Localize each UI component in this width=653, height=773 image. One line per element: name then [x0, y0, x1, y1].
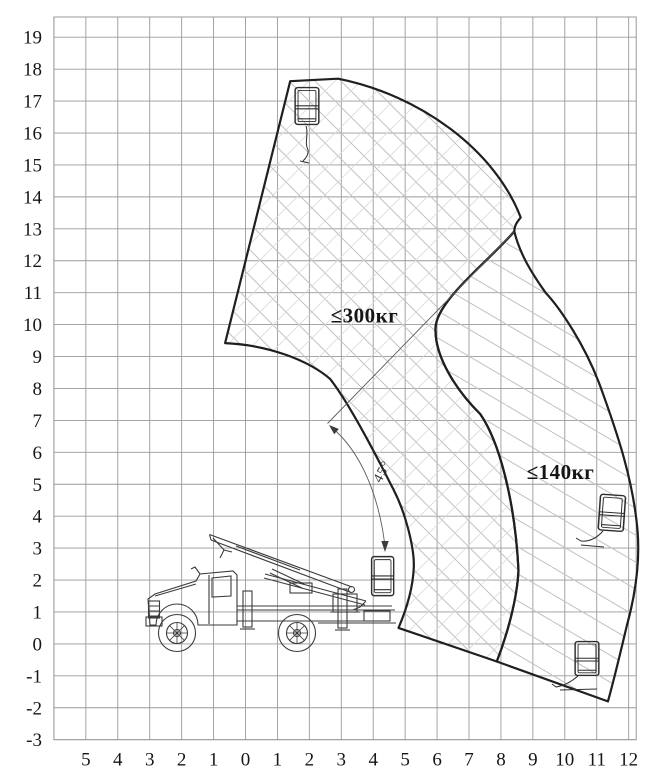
y-tick-label: 1 [33, 602, 43, 623]
y-tick-label: 2 [33, 571, 43, 592]
y-tick-label: -3 [26, 730, 42, 751]
x-tick-label: 3 [337, 750, 347, 771]
x-tick-label: 8 [496, 750, 506, 771]
truck-outrigger-front [243, 591, 252, 627]
y-tick-label: 18 [23, 60, 42, 81]
x-tick-label: 4 [113, 750, 123, 771]
boom-cylinder [270, 569, 304, 588]
x-tick-label: 5 [81, 750, 91, 771]
truck-grille-lines [149, 606, 159, 616]
x-tick-label: 7 [464, 750, 474, 771]
x-tick-label: 10 [555, 750, 574, 771]
y-tick-label: 15 [23, 155, 42, 176]
truck-front-wheel [159, 615, 196, 652]
y-tick-label: 10 [23, 315, 42, 336]
y-tick-label: 11 [24, 283, 42, 304]
platform-basket-icon-stowed [372, 557, 394, 596]
y-tick-label: 16 [23, 124, 42, 145]
truck-mirror [191, 567, 200, 574]
x-tick-label: 4 [368, 750, 378, 771]
truck-door [209, 575, 231, 624]
y-tick-label: -2 [26, 698, 42, 719]
y-tick-label: 9 [33, 347, 43, 368]
truck-hood-line [155, 584, 196, 596]
x-tick-label: 1 [209, 750, 219, 771]
y-tick-label: 3 [33, 539, 43, 560]
y-tick-label: 6 [33, 443, 43, 464]
y-tick-label: 4 [33, 507, 43, 528]
angle-arc-arrowhead-lower-icon [381, 541, 388, 552]
y-tick-label: 13 [23, 219, 42, 240]
reach-diagram-page: 45° [0, 0, 653, 773]
y-tick-label: 12 [23, 251, 42, 272]
truck-rear-box [364, 611, 390, 621]
x-tick-label: 5 [400, 750, 410, 771]
x-tick-label: 3 [145, 750, 155, 771]
truck-illustration [146, 535, 396, 652]
x-tick-label: 12 [619, 750, 638, 771]
x-tick-label: 2 [177, 750, 187, 771]
x-tick-label: 9 [528, 750, 538, 771]
y-tick-label: 0 [33, 634, 43, 655]
y-tick-label: 8 [33, 379, 43, 400]
x-tick-label: 1 [273, 750, 283, 771]
y-tick-label: 7 [33, 411, 43, 432]
zone-140kg-label: ≤140кг [527, 460, 595, 484]
y-tick-label: 5 [33, 475, 43, 496]
zone-300kg-label: ≤300кг [331, 304, 399, 328]
y-tick-label: 14 [23, 187, 43, 208]
x-tick-label: 11 [588, 750, 606, 771]
y-tick-label: 17 [23, 92, 42, 113]
x-tick-label: 6 [432, 750, 442, 771]
x-tick-label: 2 [305, 750, 315, 771]
y-tick-label: 19 [23, 28, 42, 49]
x-tick-label: 0 [241, 750, 251, 771]
truck-rear-wheel [279, 615, 316, 652]
reach-diagram: 45° [0, 0, 653, 773]
y-tick-label: -1 [26, 666, 42, 687]
